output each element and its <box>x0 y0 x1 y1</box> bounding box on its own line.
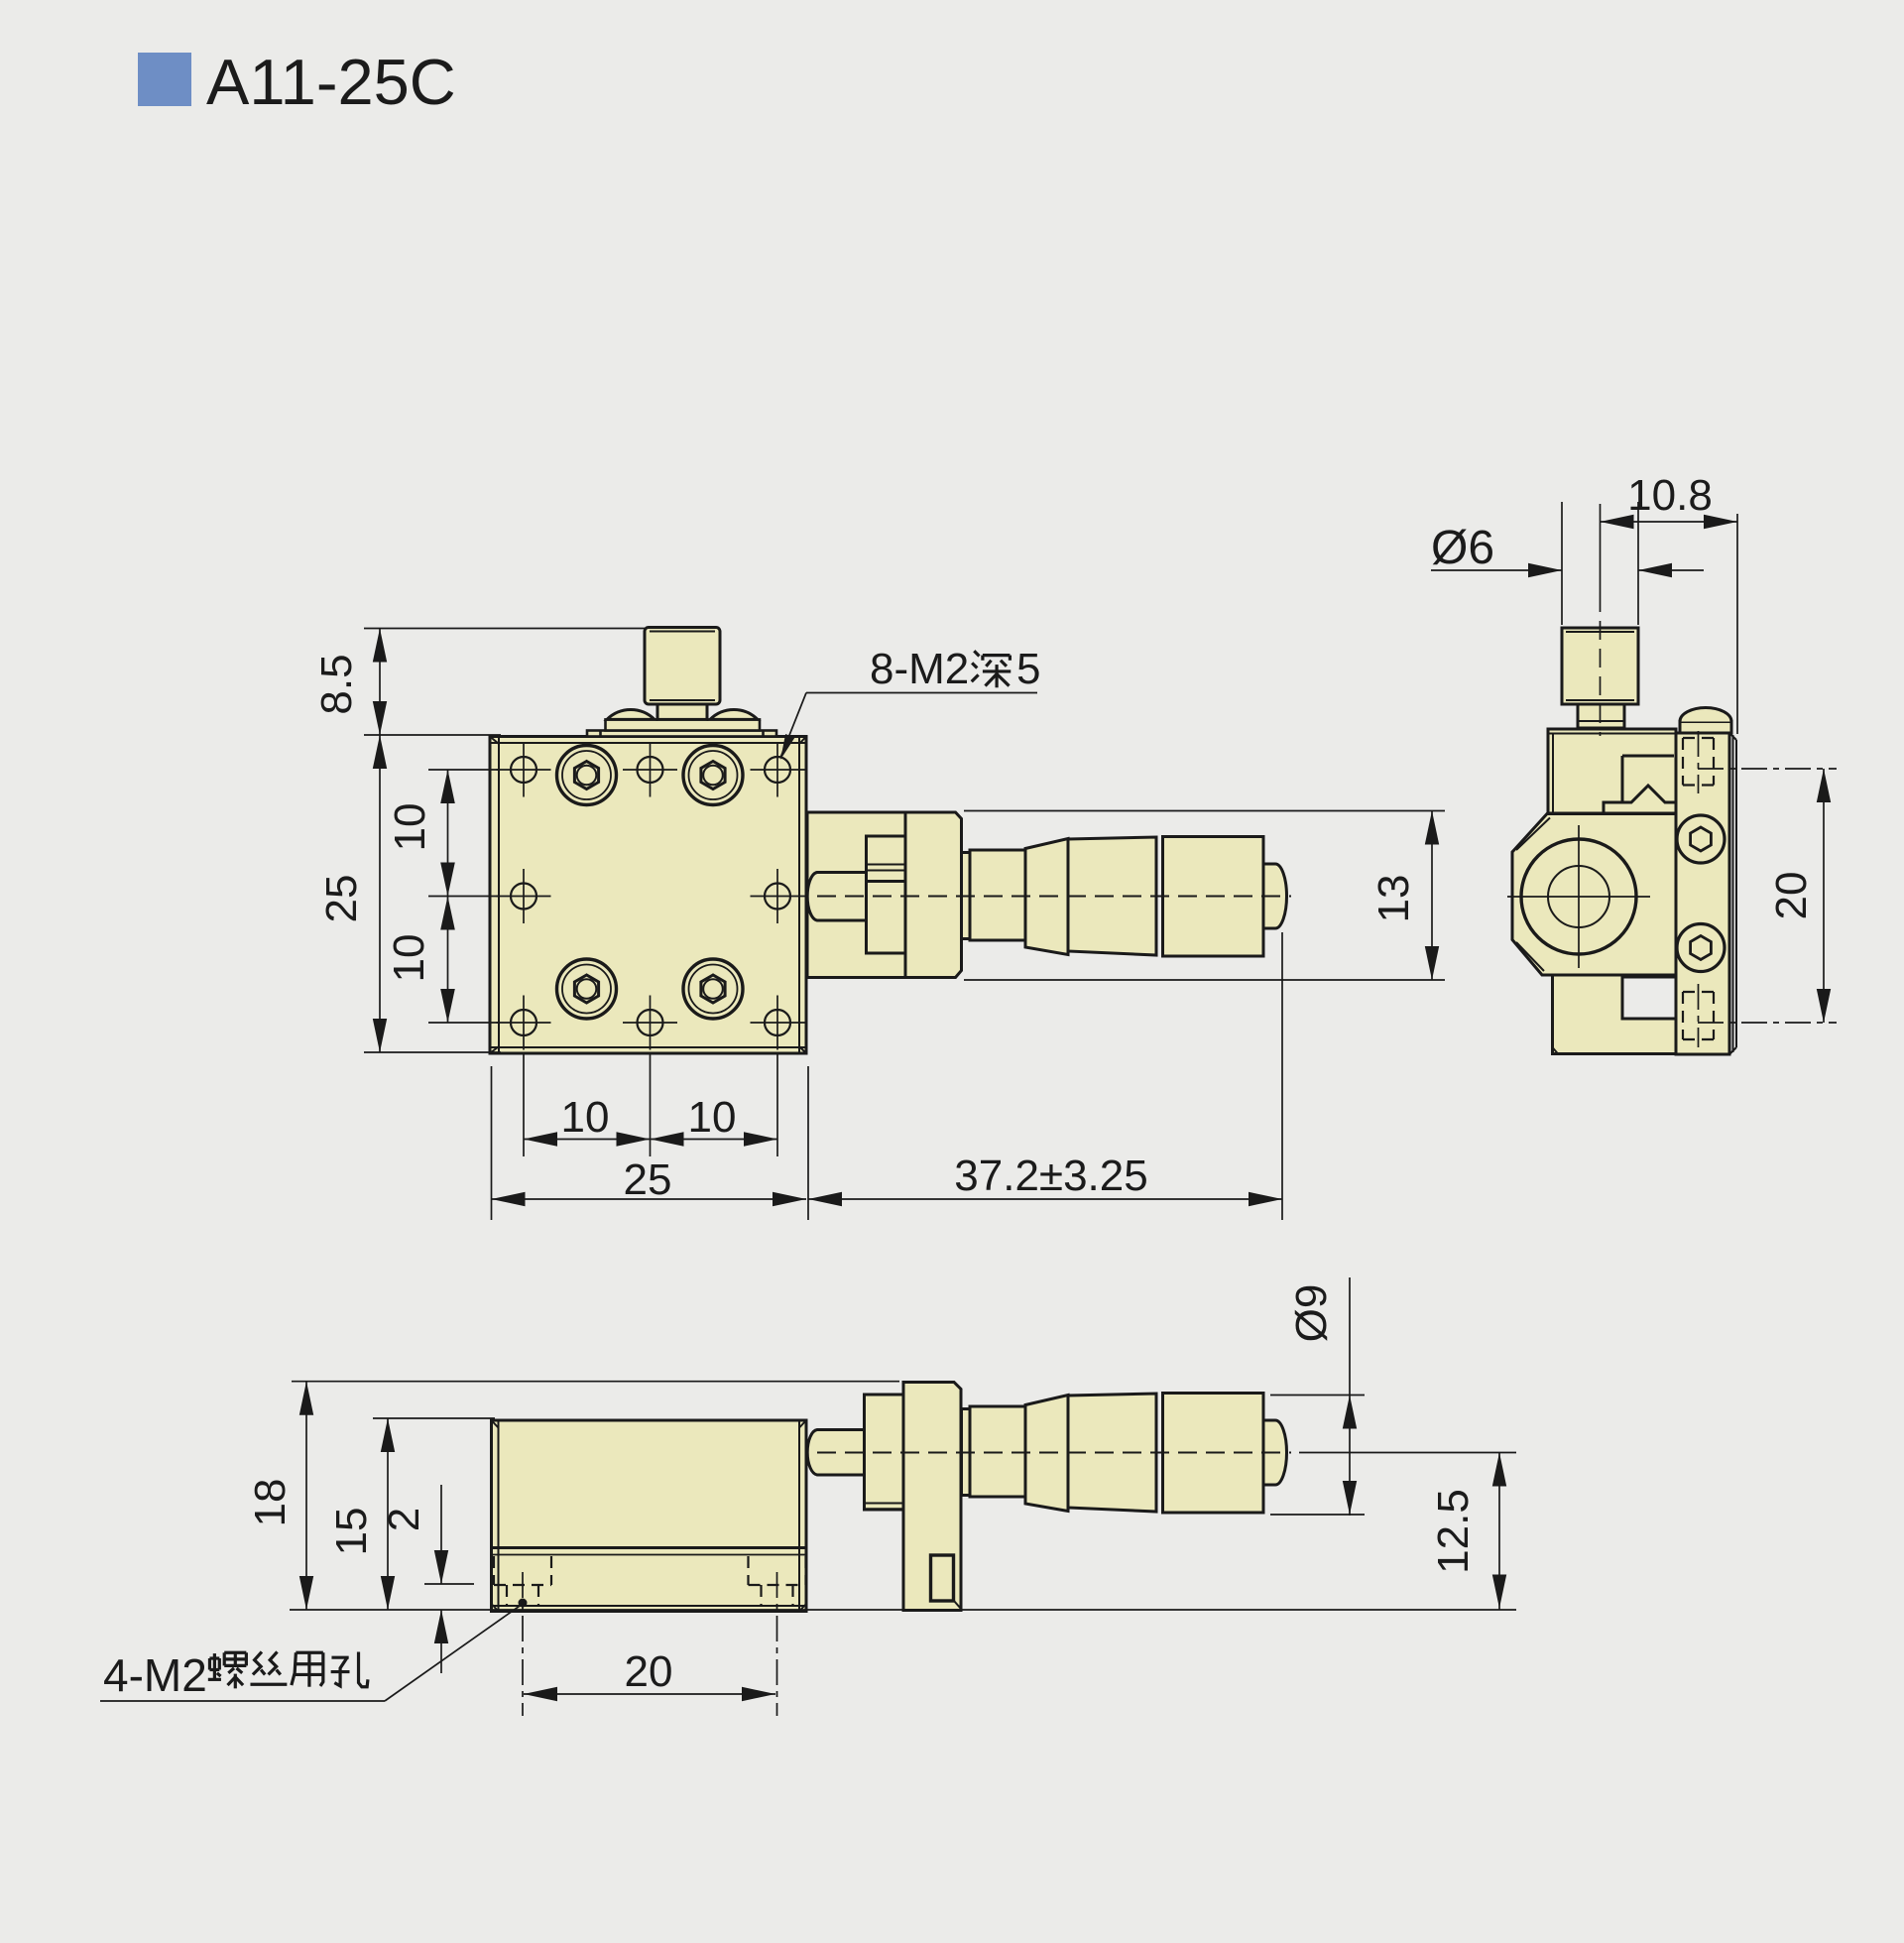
svg-text:2: 2 <box>380 1508 428 1531</box>
svg-text:10: 10 <box>688 1093 737 1142</box>
svg-text:20: 20 <box>625 1647 673 1696</box>
svg-text:Ø9: Ø9 <box>1287 1284 1336 1343</box>
svg-text:25: 25 <box>624 1155 672 1204</box>
svg-text:10: 10 <box>386 803 434 852</box>
svg-text:25: 25 <box>317 875 366 923</box>
svg-text:A11-25C: A11-25C <box>206 46 456 118</box>
svg-text:15: 15 <box>327 1508 376 1556</box>
svg-text:8-M2: 8-M2 <box>870 645 969 693</box>
svg-text:37.2±3.25: 37.2±3.25 <box>954 1152 1147 1200</box>
svg-text:20: 20 <box>1767 872 1816 920</box>
svg-text:18: 18 <box>246 1479 295 1527</box>
svg-text:10.8: 10.8 <box>1627 471 1713 520</box>
svg-text:12.5: 12.5 <box>1429 1489 1478 1574</box>
svg-text:4-M2: 4-M2 <box>103 1649 207 1701</box>
svg-text:5: 5 <box>1016 645 1040 693</box>
svg-text:10: 10 <box>385 934 433 983</box>
svg-text:13: 13 <box>1369 875 1418 923</box>
svg-text:Ø6: Ø6 <box>1431 522 1494 574</box>
svg-text:8.5: 8.5 <box>312 654 361 714</box>
svg-text:10: 10 <box>561 1093 610 1142</box>
